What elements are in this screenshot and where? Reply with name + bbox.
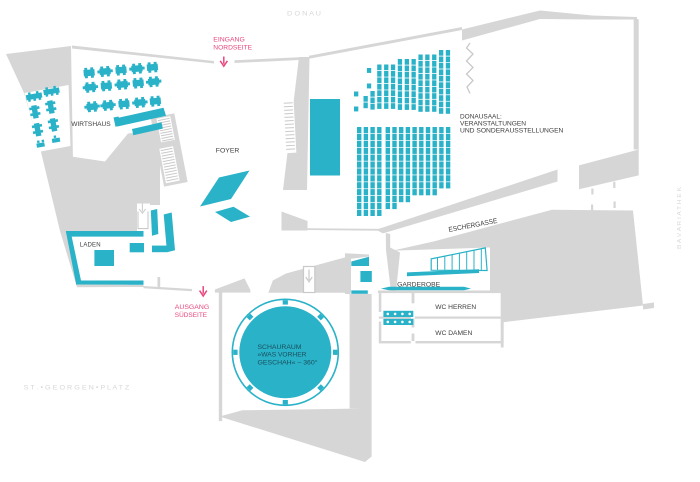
svg-text:S T . • G E O R G E N • P L A: S T . • G E O R G E N • P L A T Z [24, 386, 130, 392]
svg-text:WIRTSHAUS: WIRTSHAUS [71, 121, 111, 128]
svg-text:GESCHAH« – 360°: GESCHAH« – 360° [258, 358, 318, 366]
svg-text:NORDSEITE: NORDSEITE [213, 45, 252, 52]
svg-text:D O N A U: D O N A U [287, 12, 321, 18]
svg-text:LADEN: LADEN [80, 242, 101, 249]
svg-text:UND SONDERAUSSTELLUNGEN: UND SONDERAUSSTELLUNGEN [460, 128, 564, 135]
svg-text:AUSGANG: AUSGANG [175, 304, 209, 311]
svg-text:VERANSTALTUNGEN: VERANSTALTUNGEN [460, 121, 526, 128]
svg-text:FOYER: FOYER [216, 148, 240, 155]
svg-text:WC HERREN: WC HERREN [435, 304, 476, 311]
svg-text:WC DAMEN: WC DAMEN [435, 330, 472, 337]
svg-text:»WAS VORHER: »WAS VORHER [258, 352, 307, 359]
svg-text:B A V A R I A T H E K: B A V A R I A T H E K [677, 187, 683, 249]
svg-text:SCHAURAUM: SCHAURAUM [258, 344, 302, 351]
svg-text:EINGANG: EINGANG [213, 37, 245, 44]
svg-text:SÜDSEITE: SÜDSEITE [175, 311, 208, 319]
svg-text:DONAUSAAL:: DONAUSAAL: [460, 113, 502, 120]
